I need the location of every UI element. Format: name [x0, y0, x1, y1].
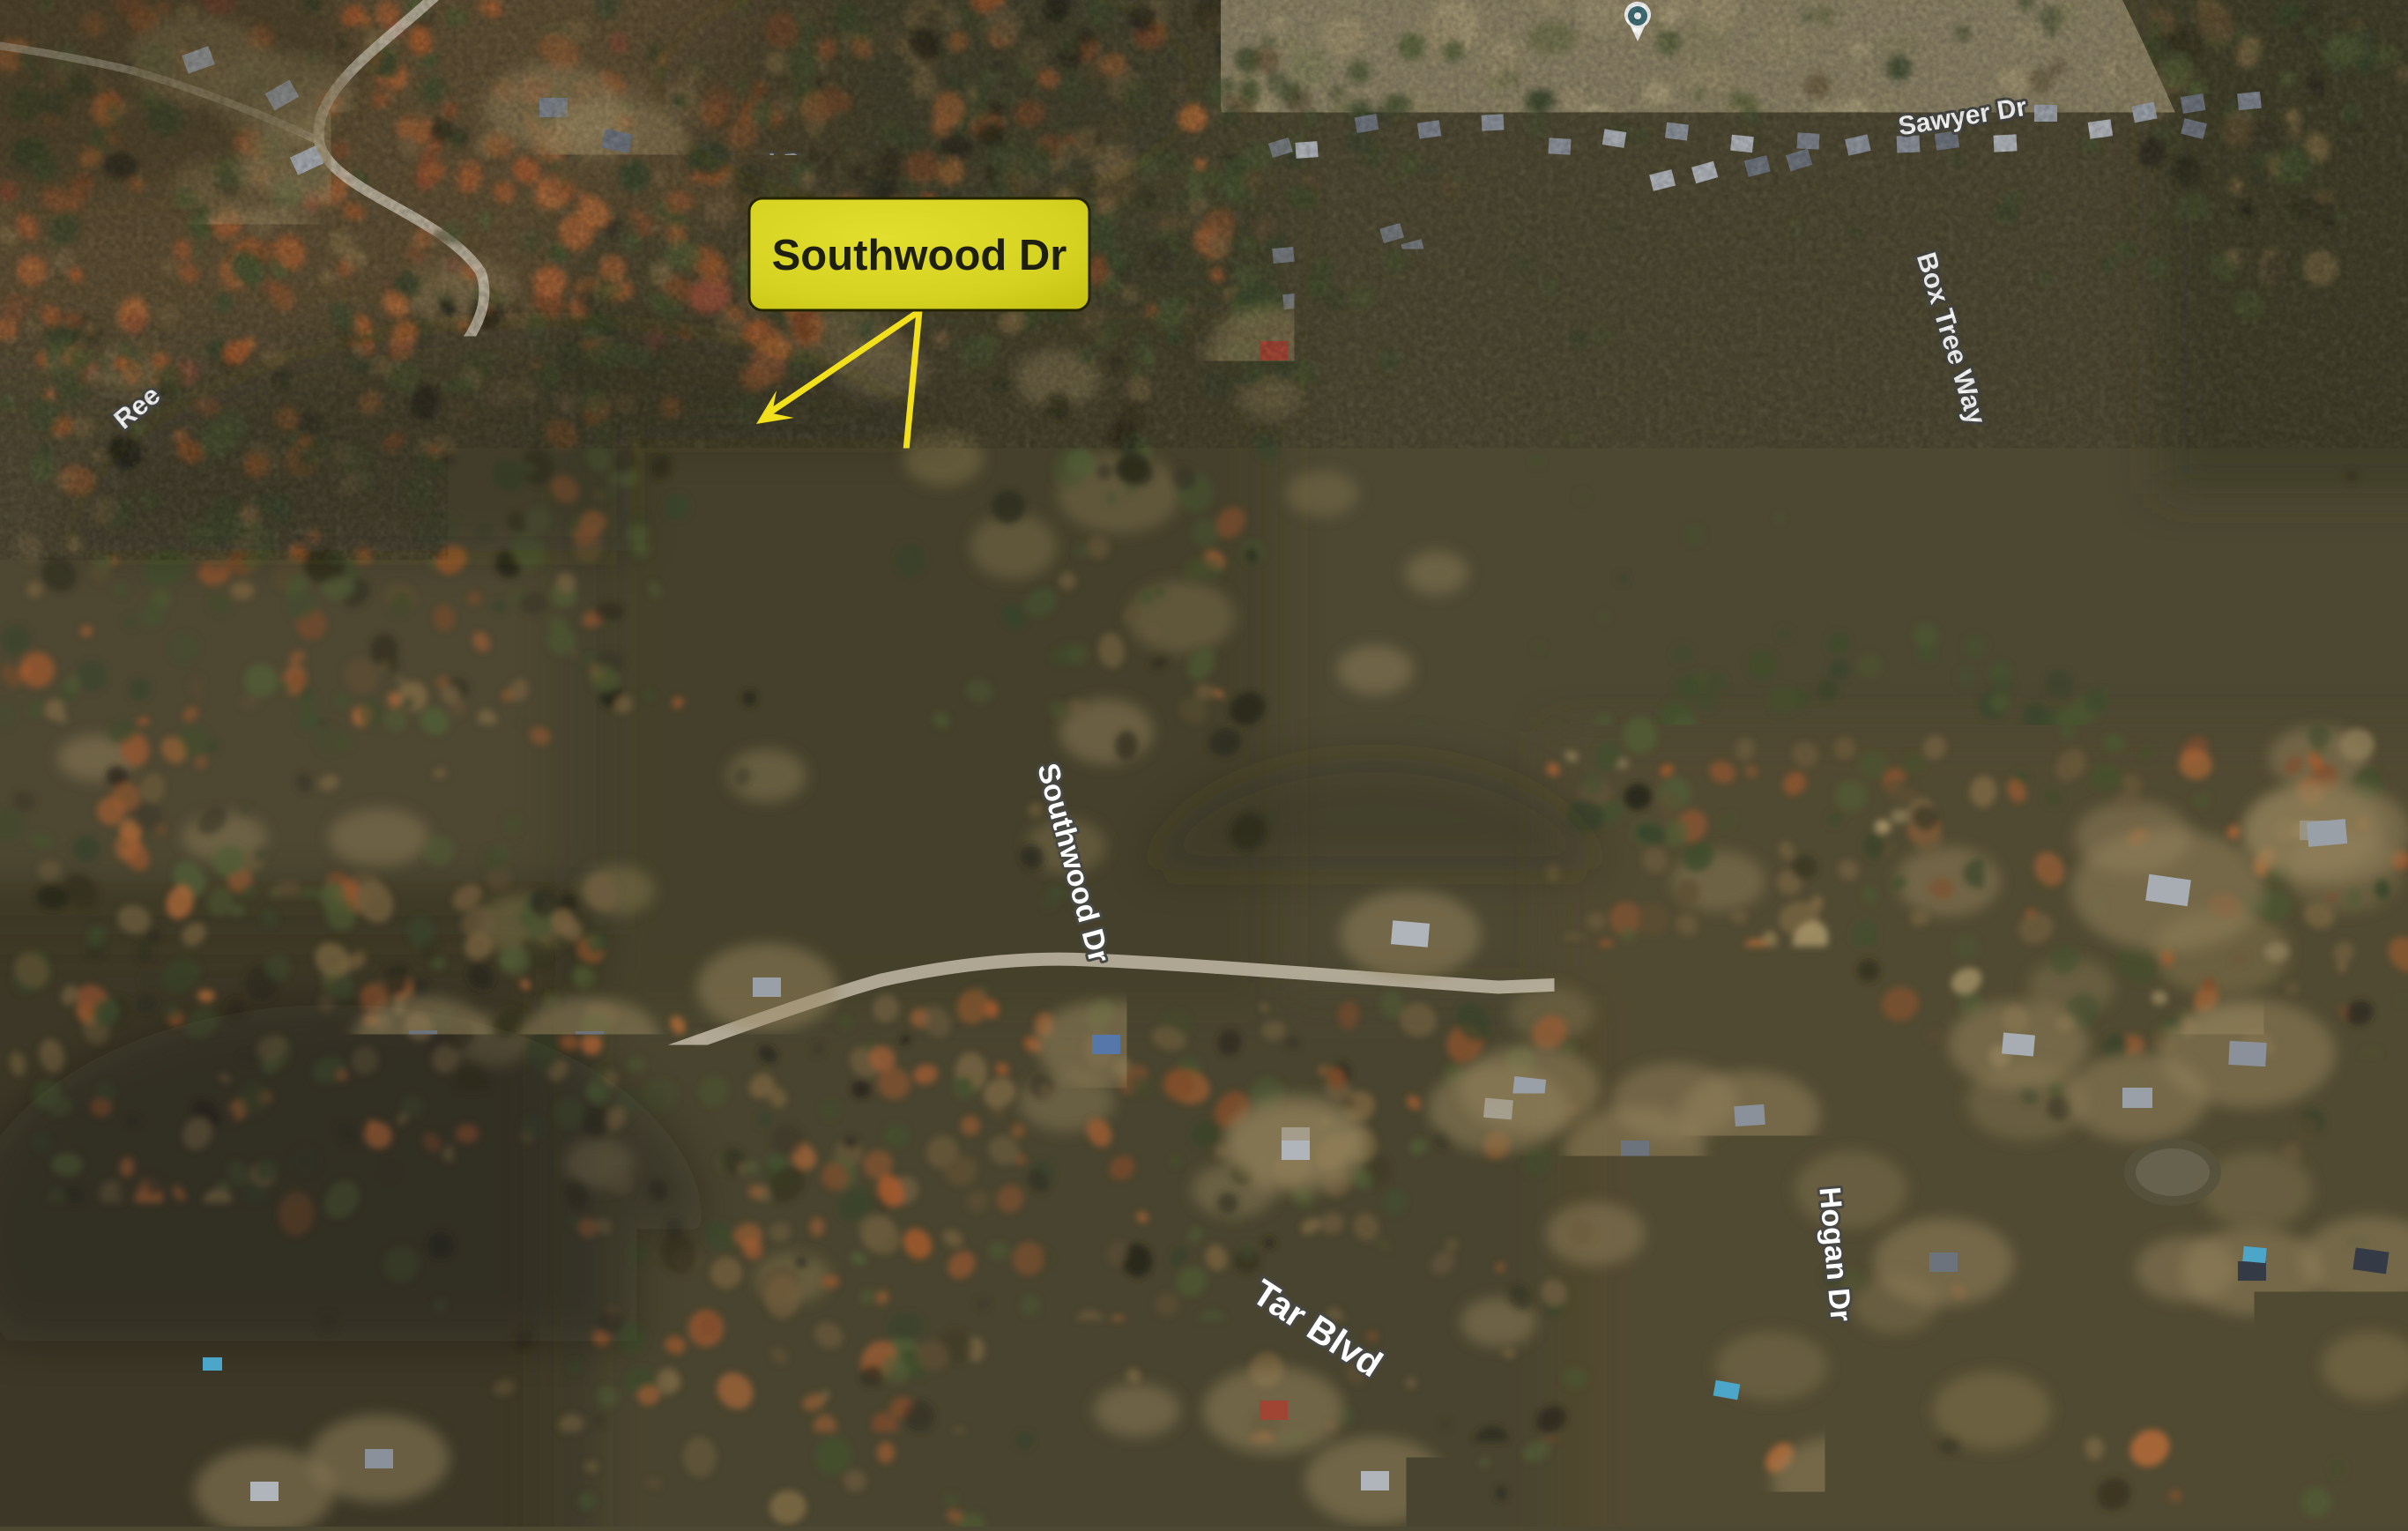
svg-text:1.36 Acres: 1.36 Acres	[1128, 509, 1338, 555]
svg-text:Southwood Dr: Southwood Dr	[772, 232, 1067, 279]
svg-text:Standing: Standing	[1678, 726, 1859, 773]
svg-text:ggarMLS: ggarMLS	[23, 1510, 76, 1524]
svg-text:™: ™	[72, 1507, 80, 1516]
svg-text:Springs Rd: Springs Rd	[1645, 782, 1870, 829]
